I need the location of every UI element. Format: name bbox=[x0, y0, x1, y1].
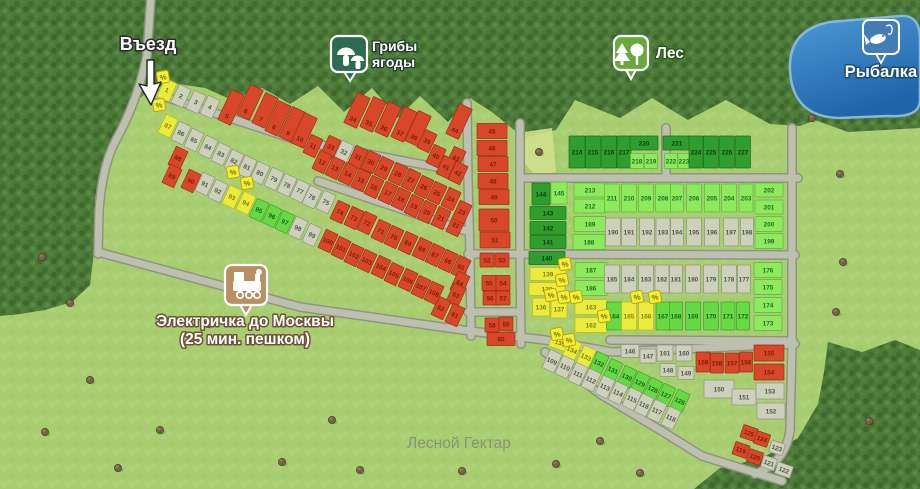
plot-number: 216 bbox=[604, 149, 615, 156]
plot-cell[interactable]: 146 bbox=[621, 345, 639, 358]
plot-number: 49 bbox=[490, 194, 498, 201]
plot-cell[interactable]: 200 bbox=[755, 217, 783, 232]
plot-number: 219 bbox=[646, 158, 657, 165]
plot-number: 221 bbox=[672, 140, 683, 147]
plot-cell[interactable]: 155 bbox=[754, 345, 784, 361]
plot-cell[interactable]: 46 bbox=[477, 141, 507, 156]
plot-cell[interactable]: 221 bbox=[663, 136, 691, 150]
plot-cell[interactable]: 55 bbox=[482, 276, 496, 291]
discount-badge[interactable]: % bbox=[562, 333, 576, 347]
discount-badge[interactable]: % bbox=[648, 290, 662, 304]
plot-cell[interactable]: 148 bbox=[660, 364, 676, 377]
watermark-title: Лесной Гектар bbox=[407, 435, 511, 452]
plot-cell[interactable]: 51 bbox=[480, 232, 510, 248]
discount-badge[interactable]: % bbox=[555, 273, 569, 287]
plot-number: 185 bbox=[607, 276, 618, 283]
discount-badge[interactable]: % bbox=[630, 290, 644, 304]
plot-number: 56 bbox=[486, 295, 494, 302]
plot-cell[interactable]: 159 bbox=[696, 352, 710, 372]
plot-cell[interactable]: 45 bbox=[477, 124, 507, 139]
plot-cell[interactable]: 144 bbox=[532, 183, 550, 205]
plot-cell[interactable]: 222 bbox=[665, 154, 678, 169]
plot-cell[interactable]: 188 bbox=[573, 235, 605, 250]
plot-cell[interactable]: 161 bbox=[657, 345, 673, 361]
plot-cell[interactable]: 49 bbox=[479, 190, 509, 205]
plot-cell[interactable]: 193 bbox=[656, 218, 670, 246]
plot-cell[interactable]: 47 bbox=[478, 157, 508, 172]
plot-cell[interactable]: 50 bbox=[479, 209, 509, 231]
plot-cell[interactable]: 227 bbox=[736, 136, 751, 168]
plot-number: 210 bbox=[624, 195, 635, 202]
plot-number: 166 bbox=[641, 313, 652, 320]
mushrooms-label-1: Грибы bbox=[372, 38, 417, 54]
plot-number: 209 bbox=[641, 195, 652, 202]
plot-number: 157 bbox=[727, 360, 738, 367]
plot-number: 225 bbox=[706, 149, 717, 156]
plot-number: 145 bbox=[554, 190, 565, 197]
plot-number: 52 bbox=[483, 257, 491, 264]
plot-number: 190 bbox=[608, 229, 619, 236]
plot-cell[interactable]: 204 bbox=[722, 184, 737, 212]
plot-number: 171 bbox=[723, 313, 734, 320]
plot-cell[interactable]: 179 bbox=[704, 265, 719, 293]
plot-cell[interactable]: 195 bbox=[687, 218, 702, 246]
plot-cell[interactable]: 226 bbox=[720, 136, 735, 168]
plot-number: 144 bbox=[536, 191, 547, 198]
discount-badge[interactable]: % bbox=[550, 327, 564, 341]
plot-cell[interactable]: 149 bbox=[678, 367, 694, 380]
plot-number: 184 bbox=[624, 276, 635, 283]
plot-number: 176 bbox=[763, 267, 774, 274]
plot-number: 201 bbox=[764, 204, 775, 211]
plot-cell[interactable]: 181 bbox=[670, 265, 683, 293]
plot-cell[interactable]: 158 bbox=[711, 353, 724, 373]
plot-cell[interactable]: 201 bbox=[755, 200, 783, 214]
discount-badge[interactable]: % bbox=[226, 165, 240, 179]
plot-cell[interactable]: 173 bbox=[754, 316, 782, 331]
plot-number: 139 bbox=[543, 271, 554, 278]
plot-number: 226 bbox=[722, 149, 733, 156]
plot-number: 137 bbox=[554, 306, 565, 313]
discount-badge[interactable]: % bbox=[569, 290, 583, 304]
plot-number: 194 bbox=[672, 229, 683, 236]
plot-cell[interactable]: 215 bbox=[586, 136, 601, 168]
plot-cell[interactable]: 202 bbox=[755, 183, 783, 197]
plot-number: 188 bbox=[584, 239, 595, 246]
plot-number: 142 bbox=[543, 225, 554, 232]
plot-number: 170 bbox=[706, 313, 717, 320]
plot-number: 153 bbox=[765, 388, 776, 395]
plot-cell[interactable]: 199 bbox=[755, 234, 783, 249]
plot-cell[interactable]: 198 bbox=[741, 218, 754, 246]
plot-number: 202 bbox=[764, 187, 775, 194]
plot-number: 147 bbox=[643, 353, 654, 360]
plot-number: 59 bbox=[502, 321, 510, 328]
plot-number: 48 bbox=[489, 178, 497, 185]
plot-cell[interactable]: 153 bbox=[756, 383, 784, 399]
plot-number: 152 bbox=[766, 408, 777, 415]
plot-number: 46 bbox=[488, 145, 496, 152]
plot-cell[interactable]: 53 bbox=[495, 253, 509, 267]
plot-number: 165 bbox=[624, 313, 635, 320]
plot-number: 154 bbox=[764, 369, 775, 376]
plot-number: 214 bbox=[572, 149, 583, 156]
plot-cell[interactable]: 203 bbox=[739, 184, 753, 212]
plot-cell[interactable]: 177 bbox=[738, 265, 751, 293]
plot-cell[interactable]: 190 bbox=[606, 218, 621, 246]
plot-number: 167 bbox=[658, 313, 669, 320]
plot-number: 186 bbox=[586, 285, 597, 292]
plot-number: 181 bbox=[671, 276, 682, 283]
plot-number: 213 bbox=[585, 187, 596, 194]
plot-cell[interactable]: 224 bbox=[689, 136, 703, 168]
train-label-2: (25 мин. пешком) bbox=[180, 331, 310, 348]
plot-number: 199 bbox=[764, 238, 775, 245]
site-plan-map: 1234567891011343536373839444043414233323… bbox=[0, 0, 920, 489]
plot-cell[interactable]: 183 bbox=[639, 265, 654, 293]
plot-cell[interactable]: 174 bbox=[754, 298, 782, 313]
plot-cell[interactable]: 223 bbox=[678, 154, 690, 169]
plot-cell[interactable]: 189 bbox=[574, 217, 606, 232]
plot-cell[interactable]: 220 bbox=[630, 136, 658, 150]
plot-cell[interactable]: 151 bbox=[732, 389, 756, 405]
plot-cell[interactable]: 225 bbox=[704, 136, 719, 168]
plot-cell[interactable]: 147 bbox=[640, 349, 656, 363]
plot-number: 173 bbox=[763, 320, 774, 327]
plot-number: 197 bbox=[726, 229, 737, 236]
plot-cell[interactable]: 175 bbox=[754, 280, 782, 295]
plot-number: 192 bbox=[642, 229, 653, 236]
plot-number: 222 bbox=[666, 158, 677, 165]
plot-number: 155 bbox=[764, 350, 775, 357]
plot-cell[interactable]: 209 bbox=[639, 184, 654, 212]
plot-cell[interactable]: 59 bbox=[499, 317, 513, 331]
plot-number: 177 bbox=[739, 276, 750, 283]
plot-number: 198 bbox=[742, 229, 753, 236]
plot-cell[interactable]: 168 bbox=[670, 302, 683, 330]
plot-number: 136 bbox=[536, 304, 547, 311]
plot-cell[interactable]: 216 bbox=[602, 136, 617, 168]
plot-cell[interactable]: 54 bbox=[496, 276, 510, 291]
plot-cell[interactable]: 187 bbox=[575, 263, 607, 278]
plot-number: 218 bbox=[632, 158, 643, 165]
plot-number: 156 bbox=[741, 359, 752, 366]
plot-cell[interactable]: 154 bbox=[754, 364, 784, 380]
plot-cell[interactable]: 194 bbox=[671, 218, 684, 246]
plot-cell[interactable]: 56 bbox=[483, 291, 497, 305]
plot-number: 196 bbox=[707, 229, 718, 236]
plot-cell[interactable]: 145 bbox=[551, 182, 567, 204]
plot-number: 224 bbox=[691, 149, 702, 156]
discount-badge[interactable]: % bbox=[240, 176, 254, 190]
plot-number: 54 bbox=[499, 280, 507, 287]
plot-cell[interactable]: 191 bbox=[622, 218, 637, 246]
plot-number: 200 bbox=[764, 221, 775, 228]
plot-cell[interactable]: 143 bbox=[530, 207, 566, 220]
plot-number: 160 bbox=[679, 350, 690, 357]
plot-cell[interactable]: 192 bbox=[640, 218, 655, 246]
plot-number: 161 bbox=[660, 350, 671, 357]
plot-cell[interactable]: 219 bbox=[645, 154, 658, 169]
plot-cell[interactable]: 185 bbox=[605, 265, 620, 293]
plot-number: 206 bbox=[689, 195, 700, 202]
plot-number: 193 bbox=[658, 229, 669, 236]
plot-number: 148 bbox=[663, 367, 674, 374]
plot-cell[interactable]: 206 bbox=[687, 184, 702, 212]
plot-number: 158 bbox=[712, 360, 723, 367]
plot-number: 179 bbox=[706, 276, 717, 283]
discount-badge[interactable]: % bbox=[152, 98, 166, 112]
plot-cell[interactable]: 165 bbox=[622, 302, 637, 330]
plot-cell[interactable]: 217 bbox=[617, 136, 631, 168]
plot-number: 203 bbox=[741, 195, 752, 202]
discount-badge[interactable]: % bbox=[544, 288, 558, 302]
plot-number: 45 bbox=[488, 128, 496, 135]
plot-number: 208 bbox=[658, 195, 669, 202]
discount-badge[interactable]: % bbox=[558, 257, 572, 271]
plot-number: 182 bbox=[657, 276, 668, 283]
plot-cell[interactable]: 169 bbox=[686, 302, 701, 330]
train-label-1: Электричка до Москвы bbox=[156, 313, 334, 330]
plot-number: 58 bbox=[488, 322, 496, 329]
plot-cell[interactable]: 52 bbox=[480, 253, 494, 267]
plot-cell[interactable]: 156 bbox=[740, 352, 753, 372]
plot-cell[interactable]: 207 bbox=[671, 184, 684, 212]
plot-number: 50 bbox=[490, 217, 498, 224]
plot-cell[interactable]: 57 bbox=[496, 291, 510, 305]
discount-badge[interactable]: % bbox=[156, 70, 170, 84]
plot-cell[interactable]: 160 bbox=[676, 345, 692, 361]
plot-cell[interactable]: 142 bbox=[530, 222, 566, 235]
plot-number: 60 bbox=[497, 336, 505, 343]
plot-number: 189 bbox=[585, 221, 596, 228]
plot-number: 223 bbox=[679, 158, 690, 165]
plot-number: 174 bbox=[763, 302, 774, 309]
plot-cell[interactable]: 166 bbox=[639, 302, 654, 330]
plot-number: 168 bbox=[671, 313, 682, 320]
plot-number: 141 bbox=[543, 239, 554, 246]
plot-number: 207 bbox=[672, 195, 683, 202]
entrance-label: Въезд bbox=[120, 34, 177, 54]
plot-cell[interactable]: 48 bbox=[478, 174, 508, 189]
plot-cell[interactable]: 58 bbox=[485, 318, 499, 332]
plot-number: 212 bbox=[585, 203, 596, 210]
plot-cell[interactable]: 184 bbox=[622, 265, 637, 293]
plot-cell[interactable]: 178 bbox=[722, 265, 737, 293]
plot-number: 205 bbox=[707, 195, 718, 202]
plot-number: 191 bbox=[624, 229, 635, 236]
forest-label: Лес bbox=[656, 45, 684, 62]
plot-cell[interactable]: 212 bbox=[574, 199, 606, 213]
plot-number: 169 bbox=[688, 313, 699, 320]
plot-cell[interactable]: 180 bbox=[686, 265, 701, 293]
plot-cell[interactable]: 197 bbox=[724, 218, 739, 246]
plot-number: 217 bbox=[619, 149, 630, 156]
plot-number: 180 bbox=[688, 276, 699, 283]
plot-cell[interactable]: 208 bbox=[656, 184, 671, 212]
plot-cell[interactable]: 210 bbox=[622, 184, 637, 212]
plot-number: 140 bbox=[542, 255, 553, 262]
plot-number: 151 bbox=[739, 394, 750, 401]
plot-cell[interactable]: 141 bbox=[530, 236, 566, 249]
plot-number: 187 bbox=[586, 267, 597, 274]
plot-number: 149 bbox=[681, 370, 692, 377]
plot-cell[interactable]: 152 bbox=[757, 403, 785, 419]
plot-number: 159 bbox=[698, 359, 709, 366]
plot-cell[interactable]: 167 bbox=[656, 302, 670, 330]
plot-number: 178 bbox=[724, 276, 735, 283]
plot-cell[interactable]: 218 bbox=[631, 154, 644, 169]
plot-cell[interactable]: 176 bbox=[754, 263, 782, 278]
plot-cell[interactable]: 211 bbox=[605, 184, 620, 212]
plot-number: 162 bbox=[586, 322, 597, 329]
discount-badge[interactable]: % bbox=[597, 309, 611, 323]
plot-cell[interactable]: 172 bbox=[737, 302, 750, 330]
plot-number: 172 bbox=[738, 313, 749, 320]
plot-cell[interactable]: 214 bbox=[569, 136, 585, 168]
plot-number: 215 bbox=[588, 149, 599, 156]
plot-number: 195 bbox=[689, 229, 700, 236]
plot-number: 47 bbox=[489, 161, 497, 168]
plot-number: 51 bbox=[491, 237, 499, 244]
plot-cell[interactable]: 196 bbox=[705, 218, 720, 246]
plot-cell[interactable]: 157 bbox=[725, 353, 739, 373]
plot-cell[interactable]: 60 bbox=[487, 333, 515, 346]
plot-number: 183 bbox=[641, 276, 652, 283]
plot-cell[interactable]: 182 bbox=[655, 265, 669, 293]
plot-number: 146 bbox=[625, 348, 636, 355]
plot-cell[interactable]: 170 bbox=[704, 302, 719, 330]
plot-number: 163 bbox=[586, 304, 597, 311]
plot-number: 143 bbox=[543, 210, 554, 217]
plot-number: 150 bbox=[714, 386, 725, 393]
fishing-label: Рыбалка bbox=[845, 63, 918, 81]
plot-cell[interactable]: 205 bbox=[705, 184, 720, 212]
plot-cell[interactable]: 213 bbox=[574, 183, 606, 197]
plot-number: 227 bbox=[738, 149, 749, 156]
plot-number: 211 bbox=[607, 195, 618, 202]
plot-number: 204 bbox=[724, 195, 735, 202]
plot-number: 57 bbox=[499, 295, 507, 302]
plot-cell[interactable]: 171 bbox=[721, 302, 735, 330]
plot-number: 53 bbox=[498, 257, 506, 264]
mushrooms-label-2: ягоды bbox=[372, 54, 415, 70]
plot-number: 55 bbox=[485, 280, 493, 287]
plot-number: 175 bbox=[763, 284, 774, 291]
plot-number: 220 bbox=[639, 140, 650, 147]
discount-badge[interactable]: % bbox=[557, 290, 571, 304]
plot-cell[interactable]: 150 bbox=[704, 380, 734, 398]
